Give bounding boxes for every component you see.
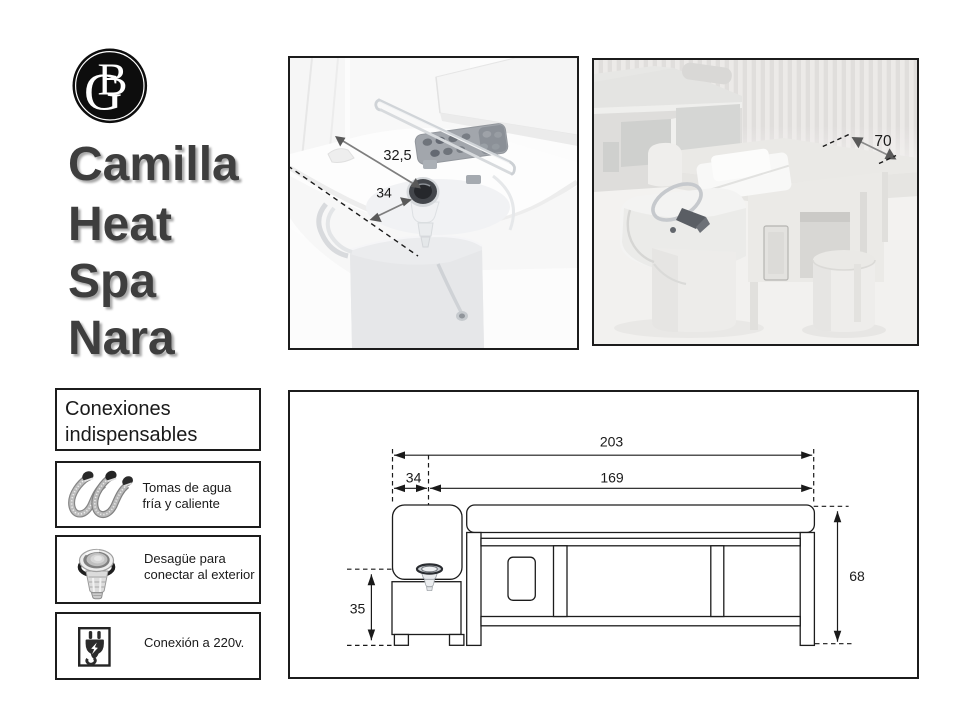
- svg-text:203: 203: [600, 434, 624, 450]
- svg-text:32,5: 32,5: [383, 148, 411, 164]
- svg-text:34: 34: [376, 185, 392, 201]
- svg-text:B: B: [98, 55, 128, 105]
- svg-text:35: 35: [350, 601, 366, 617]
- svg-text:169: 169: [600, 470, 624, 486]
- svg-text:34: 34: [406, 470, 422, 486]
- svg-text:68: 68: [849, 568, 865, 584]
- svg-text:70: 70: [874, 133, 892, 150]
